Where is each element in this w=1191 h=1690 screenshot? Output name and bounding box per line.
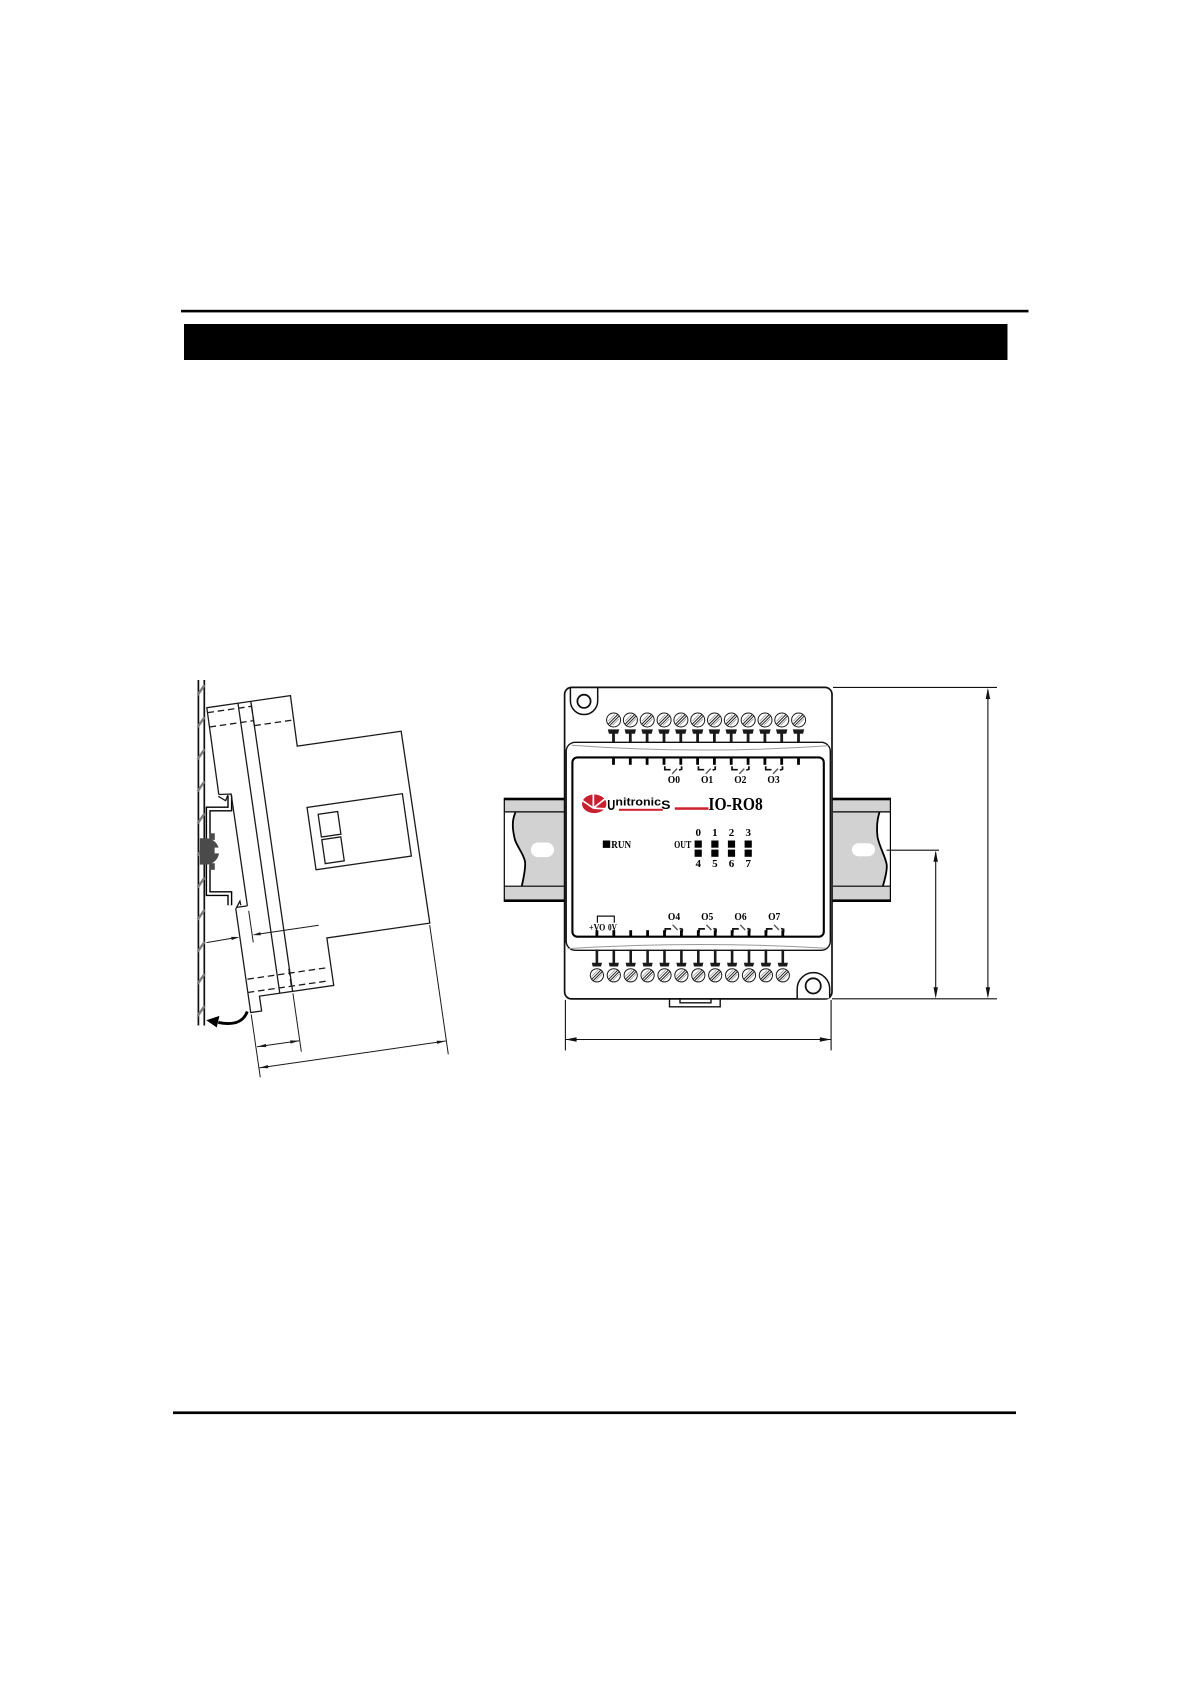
svg-text:IO-RO8: IO-RO8 bbox=[708, 794, 763, 814]
svg-text:7: 7 bbox=[745, 858, 751, 870]
svg-text:3: 3 bbox=[745, 827, 751, 839]
svg-text:6: 6 bbox=[729, 858, 735, 870]
svg-text:O5: O5 bbox=[701, 912, 713, 923]
svg-text:O3: O3 bbox=[767, 775, 779, 786]
svg-text:2: 2 bbox=[729, 827, 735, 839]
svg-text:O6: O6 bbox=[734, 912, 746, 923]
svg-text:O4: O4 bbox=[668, 912, 680, 923]
svg-text:RUN: RUN bbox=[611, 839, 631, 851]
svg-text:5: 5 bbox=[712, 858, 718, 870]
svg-text:O0: O0 bbox=[668, 775, 680, 786]
svg-text:4: 4 bbox=[695, 858, 701, 870]
svg-text:0: 0 bbox=[695, 827, 701, 839]
svg-text:O1: O1 bbox=[701, 775, 713, 786]
svg-text:U: U bbox=[607, 798, 615, 814]
svg-text:O7: O7 bbox=[768, 912, 780, 923]
svg-text:nitronic: nitronic bbox=[615, 797, 661, 809]
svg-text:O2: O2 bbox=[734, 775, 746, 786]
svg-text:OUT: OUT bbox=[674, 839, 692, 851]
svg-text:1: 1 bbox=[712, 827, 718, 839]
